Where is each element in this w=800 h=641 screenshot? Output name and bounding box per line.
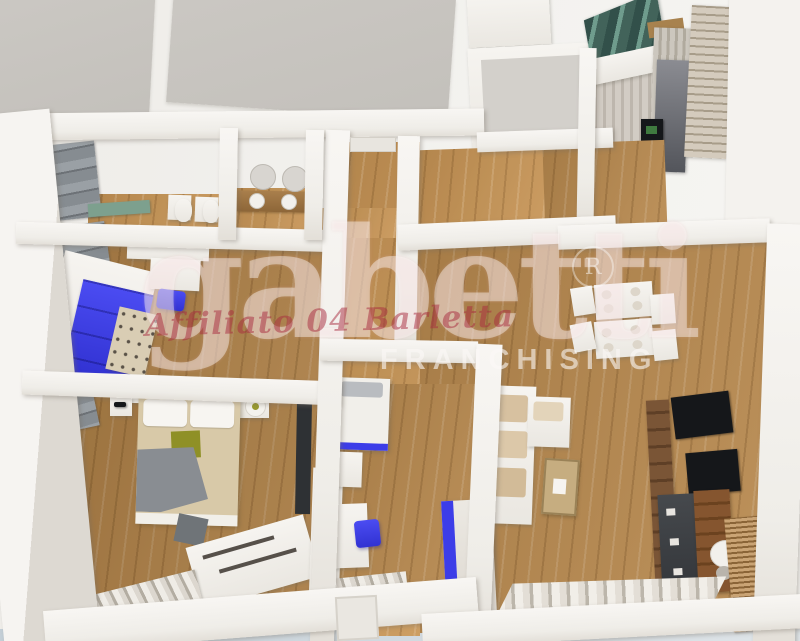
rooftop-block-small — [467, 0, 552, 48]
bedroom1-tv-panel — [295, 402, 312, 514]
sofa-cushion-3 — [495, 467, 527, 497]
wall-lamp-left — [114, 402, 126, 407]
roof-panel-left — [0, 0, 155, 126]
watermark-registered-emblem: R — [572, 246, 614, 288]
bed-pillow-right — [190, 400, 235, 428]
sofa-ottoman — [527, 396, 571, 447]
bathroom-mirror-left — [250, 164, 276, 190]
kitchen-oven-appliance — [641, 119, 663, 142]
sofa-cushion-2 — [496, 430, 528, 458]
bedroom3-desk-chair — [354, 519, 382, 548]
table-lamp-center — [252, 403, 259, 410]
single-bed-pillow — [341, 381, 383, 397]
sofa-cushion-1 — [496, 394, 528, 422]
single-bed — [334, 377, 390, 451]
cabinet-item-3 — [673, 568, 682, 575]
tv-screen-lower — [685, 449, 740, 495]
floorplan-3d-render: gabetti FRANCHISING Affiliato 04 Barlett… — [0, 0, 800, 641]
bed-pillow-left — [143, 399, 188, 427]
right-exterior-wall-top — [725, 0, 800, 251]
cabinet-item-1 — [666, 508, 675, 515]
double-bed — [135, 394, 240, 527]
cabinet-item-2 — [670, 538, 679, 545]
tv-screen-upper — [671, 391, 734, 440]
watermark-franchising-text: FRANCHISING — [380, 344, 658, 377]
ottoman-cushion — [533, 401, 564, 421]
roof-panel-right — [166, 0, 456, 122]
bathroom-door — [350, 137, 396, 152]
coffee-table-paper — [553, 478, 567, 494]
coffee-table — [541, 458, 580, 516]
corridor-door — [335, 595, 379, 641]
kitchen-oven-display — [646, 126, 657, 134]
